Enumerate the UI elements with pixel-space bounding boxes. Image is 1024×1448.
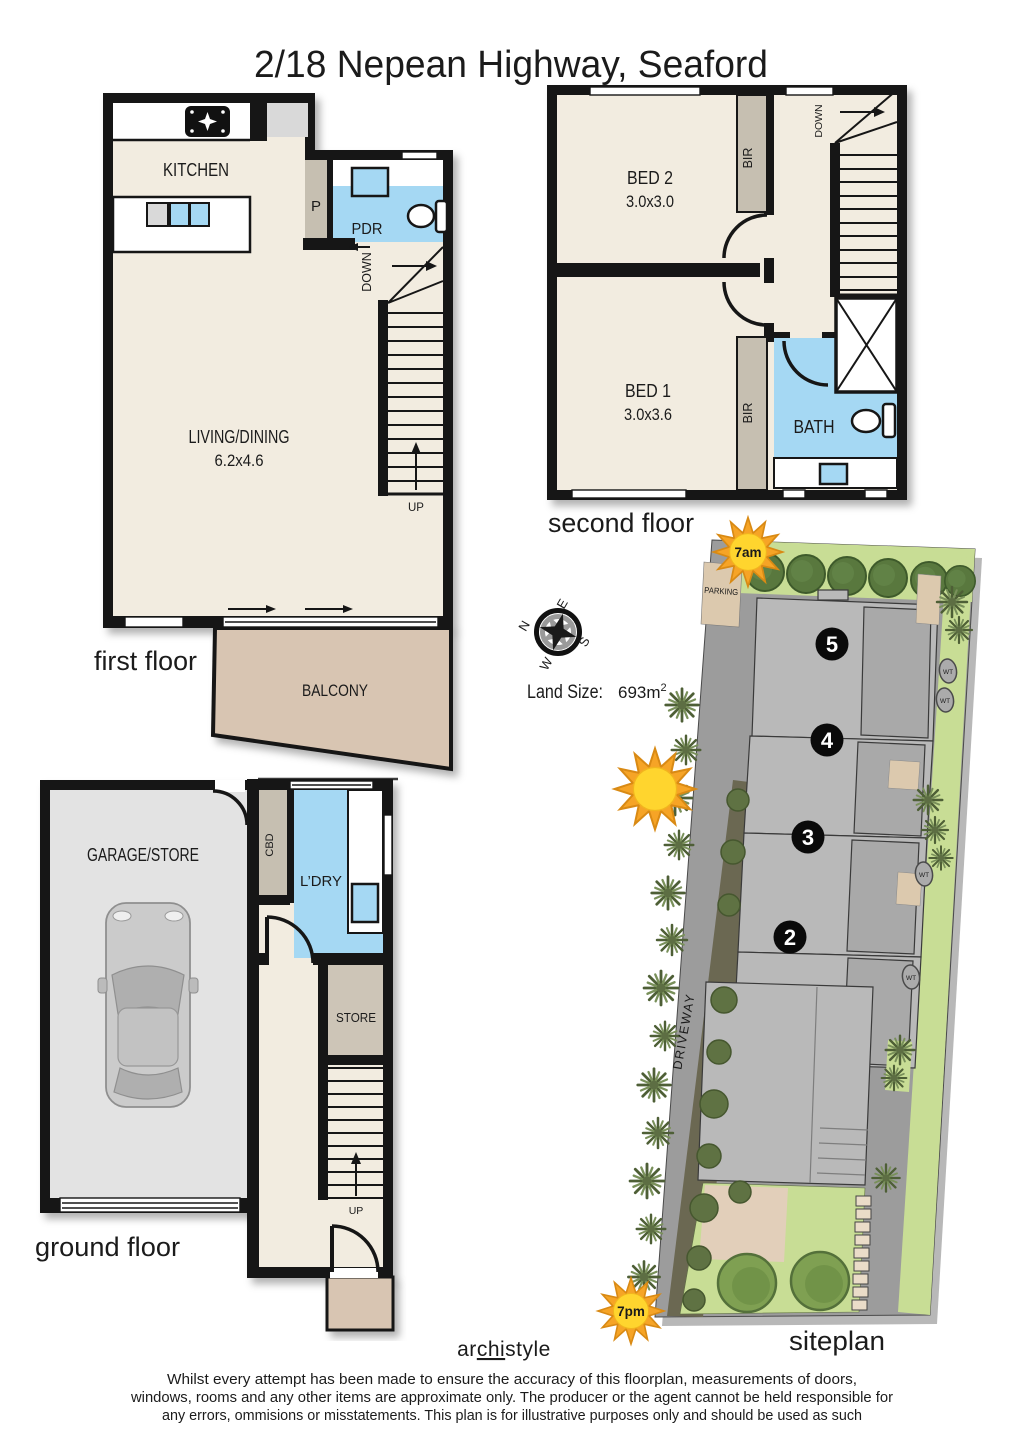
living-label: LIVING/DINING [189,427,290,447]
ground-floor-label: ground floor [35,1232,180,1262]
first-floor-label: first floor [94,646,197,676]
unit-4-label: 4 [821,728,834,753]
footer: archistyle Whilst every attempt has been… [130,1338,893,1424]
wt-label-2: WT [940,698,950,705]
garage-label: GARAGE/STORE [87,845,199,865]
store-floor [328,965,383,1055]
pantry-label: P [311,198,321,215]
bath-window-1 [783,490,805,498]
first-floor-plan: KITCHEN P PDR DOWN UP LIVING/DINING 6.2x… [94,93,453,779]
compass-n: N [515,618,533,634]
entry-door-gap [330,1268,378,1278]
porch-area [327,1277,393,1330]
second-floor-label: second floor [548,508,694,538]
bir-bed2-label: BIR [741,148,755,169]
floorplan-image: 2/18 Nepean Highway, Seaford [0,0,1024,1448]
bir-bed1-label: BIR [741,403,755,424]
bed2-label: BED 2 [627,168,673,188]
rear-tree-2 [791,1252,849,1310]
disclaimer-line-1: Whilst every attempt has been made to en… [167,1371,857,1388]
siteplan-label: siteplan [789,1326,885,1356]
shower-icon [836,298,897,392]
rear-bush [729,1181,751,1203]
pdr-label: PDR [352,221,383,238]
wt-label-3: WT [919,872,929,879]
stove-icon [185,106,230,137]
sun-7am-label: 7am [734,545,761,560]
up-label-ground: UP [349,1205,364,1217]
sun-midday-icon [615,749,696,830]
bed1-dim-label: 3.0x3.6 [624,405,672,424]
cbd-label: CBD [264,833,276,856]
garage-door [60,1198,240,1212]
basin-icon [352,168,388,196]
compass-s: S [575,634,592,649]
compass-w: W [537,654,556,673]
down-label: DOWN [360,252,374,292]
archistyle-logo: archistyle [457,1338,551,1361]
washer-icon [352,884,378,922]
vanity-sink-icon [820,464,847,484]
second-floor-plan: BED 2 3.0x3.0 BED 1 3.0x3.6 BATH BIR BIR… [547,85,907,538]
up-label: UP [408,502,424,514]
living-dim-label: 6.2x4.6 [215,451,264,470]
disclaimer-line-3: any errors, ommisions or misstatements. … [162,1407,862,1424]
wt-label-4: WT [906,975,916,982]
siteplan: WT WT WT WT [598,518,982,1357]
sun-7pm-label: 7pm [617,1304,645,1319]
bed1-window [572,490,686,498]
disclaimer-line-2: windows, rooms and any other items are a… [130,1389,893,1406]
wt-label-1: WT [943,669,953,676]
compass-icon: N E S W [515,596,593,673]
rear-tree-1 [718,1254,776,1312]
unit-3-label: 3 [802,825,814,850]
balcony-label: BALCONY [302,682,368,700]
page-title: 2/18 Nepean Highway, Seaford [254,44,768,86]
pdr-window [402,152,437,159]
bath-window-2 [865,490,887,498]
land-size-label: Land Size: [527,682,603,703]
ground-floor-plan: GARAGE/STORE CBD L’DRY STORE UP ground f… [35,779,393,1330]
down-label-2f: DOWN [813,104,825,137]
bed2-window [590,87,700,95]
stair-window [786,87,833,95]
kitchen-wall-stub [250,100,267,141]
floorplan-sheet: 2/18 Nepean Highway, Seaford [0,0,1024,1448]
car-icon [98,903,198,1107]
unit-5-label: 5 [826,632,838,657]
kitchen-label: KITCHEN [163,160,229,180]
sink-icon [147,203,209,226]
unit-2-label: 2 [784,925,796,950]
bed1-label: BED 1 [625,381,671,401]
bed2-dim-label: 3.0x3.0 [626,192,674,211]
fridge-space [267,103,308,137]
bath-label: BATH [794,417,835,437]
land-size-value: 693m2 [618,682,667,702]
tan-patch-2 [888,760,920,790]
laundry-label: L’DRY [300,873,342,890]
laundry-side-window [384,815,392,875]
laundry-top-window [290,781,373,789]
store-label: STORE [336,1011,376,1025]
tan-patch-1 [916,574,941,625]
living-window [125,617,183,627]
